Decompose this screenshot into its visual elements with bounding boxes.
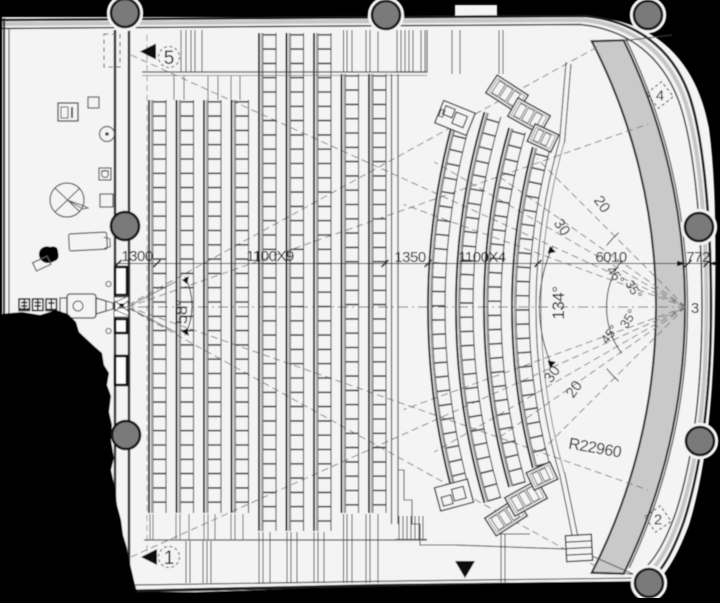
- svg-text:6010: 6010: [595, 249, 627, 266]
- svg-text:58°: 58°: [172, 300, 191, 324]
- svg-text:1350: 1350: [394, 249, 426, 266]
- svg-text:1300: 1300: [121, 248, 153, 265]
- svg-text:1100X4: 1100X4: [458, 249, 506, 266]
- svg-text:1100X9: 1100X9: [246, 248, 294, 265]
- svg-text:772: 772: [686, 249, 710, 266]
- svg-text:134°: 134°: [549, 286, 568, 319]
- svg-text:1: 1: [164, 548, 175, 569]
- svg-text:5: 5: [164, 48, 175, 69]
- svg-text:2: 2: [654, 512, 662, 529]
- svg-text:3: 3: [691, 300, 699, 317]
- svg-text:4: 4: [656, 88, 664, 105]
